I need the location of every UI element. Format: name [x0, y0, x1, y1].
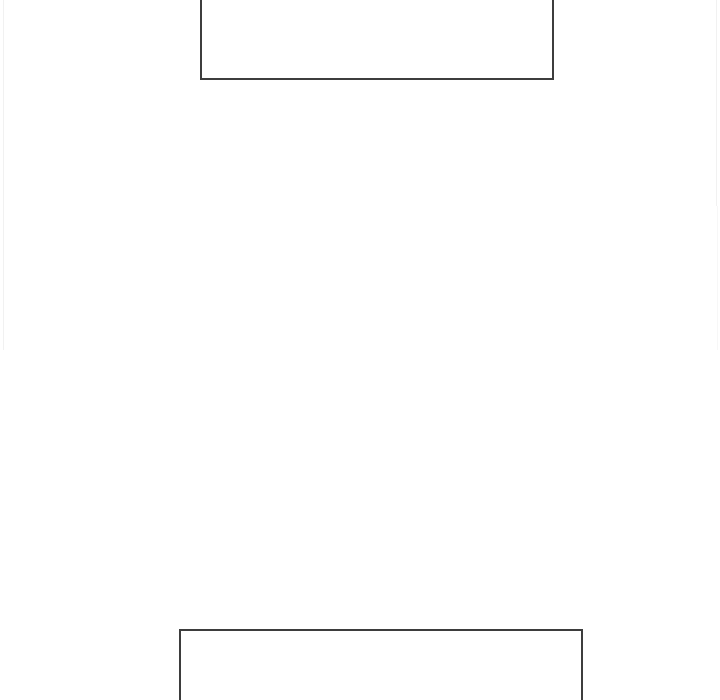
top-outlined-box [200, 0, 554, 80]
right-edge-seam-line [716, 0, 717, 206]
left-edge-seam-line [3, 0, 4, 350]
page-viewport [0, 0, 720, 700]
bottom-outlined-box [179, 629, 583, 700]
right-edge-seam-line-faint [717, 206, 718, 350]
